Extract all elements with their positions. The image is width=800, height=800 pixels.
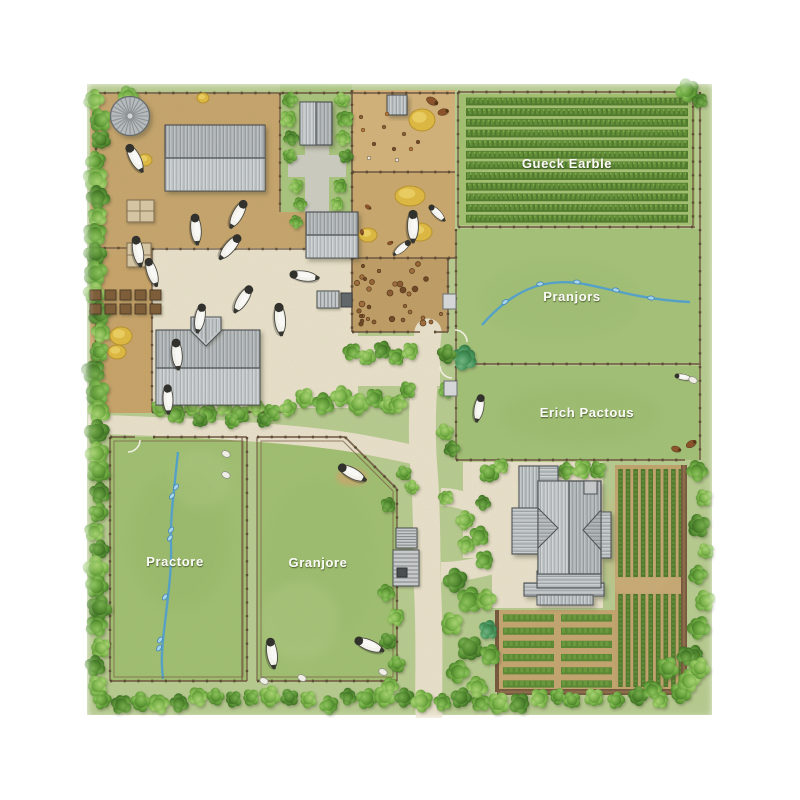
svg-text:Gueck Earble: Gueck Earble: [522, 156, 612, 171]
svg-text:Granjore: Granjore: [289, 555, 348, 570]
svg-text:Pranjors: Pranjors: [543, 289, 601, 304]
svg-text:Erich Pactous: Erich Pactous: [540, 405, 635, 420]
svg-text:Practore: Practore: [146, 554, 204, 569]
